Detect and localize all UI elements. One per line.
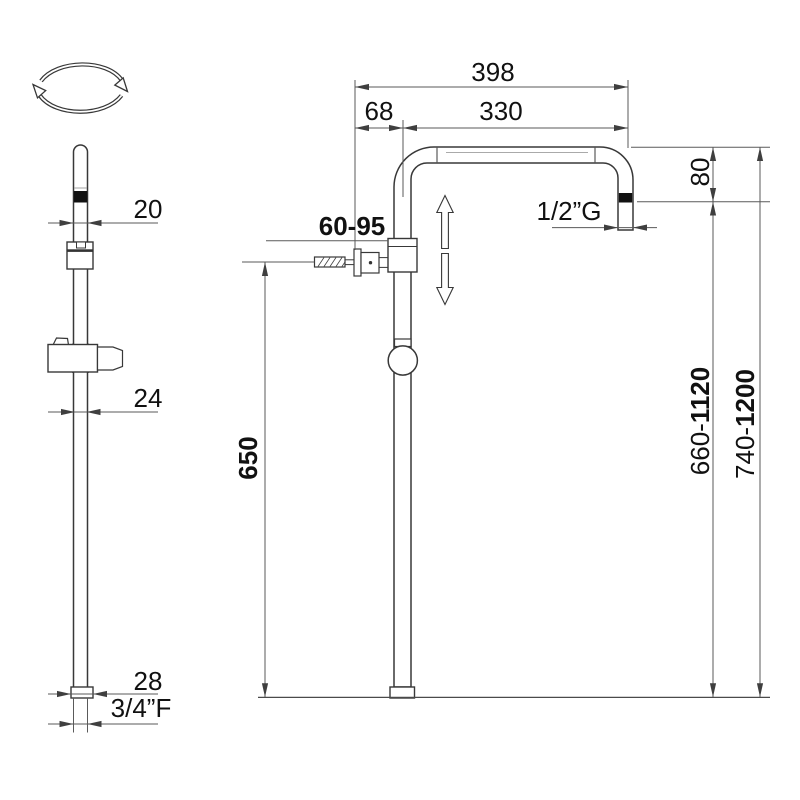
diverter-knob [388, 346, 417, 375]
outlet-band [619, 193, 632, 203]
technical-drawing-linework [0, 0, 800, 800]
rail-band [74, 191, 87, 203]
rail-base-collar [71, 687, 93, 698]
rail-tube [74, 145, 88, 693]
down-adjust-arrow-icon [437, 254, 453, 305]
up-adjust-arrow-icon [437, 196, 453, 249]
shower-column-technical-drawing: 20 24 28 3/4”F 398 68 330 60-95 1/2”G 80… [0, 0, 800, 800]
dim-label-height-outer: 740-1200 [732, 369, 758, 479]
dim-label-outlet-drop: 80 [687, 158, 713, 187]
vertical-adjust-arrows [437, 196, 453, 305]
dim-label-arm-reach: 330 [479, 98, 522, 124]
dim-label-total-width: 398 [471, 59, 514, 85]
dim-label-bracket-height: 650 [235, 436, 261, 479]
dim-label-height-inner: 660-1120 [687, 367, 713, 475]
dim-label-bracket-range: 60-95 [319, 213, 386, 239]
dim-label-rail-top-diameter: 20 [134, 196, 163, 222]
dim-label-wall-offset: 68 [365, 98, 394, 124]
dim-label-outlet-thread: 1/2”G [536, 198, 601, 224]
slider-holder [48, 345, 98, 373]
dim-label-rail-bottom-diameter: 28 [134, 668, 163, 694]
column-base-collar [390, 687, 415, 698]
dim-label-rail-mid-diameter: 24 [134, 385, 163, 411]
wall-bracket [315, 249, 389, 276]
rotation-icon [33, 64, 128, 111]
slide-rail-view [48, 145, 123, 733]
bracket-sleeve [388, 239, 417, 273]
dim-label-rail-thread: 3/4”F [111, 695, 172, 721]
